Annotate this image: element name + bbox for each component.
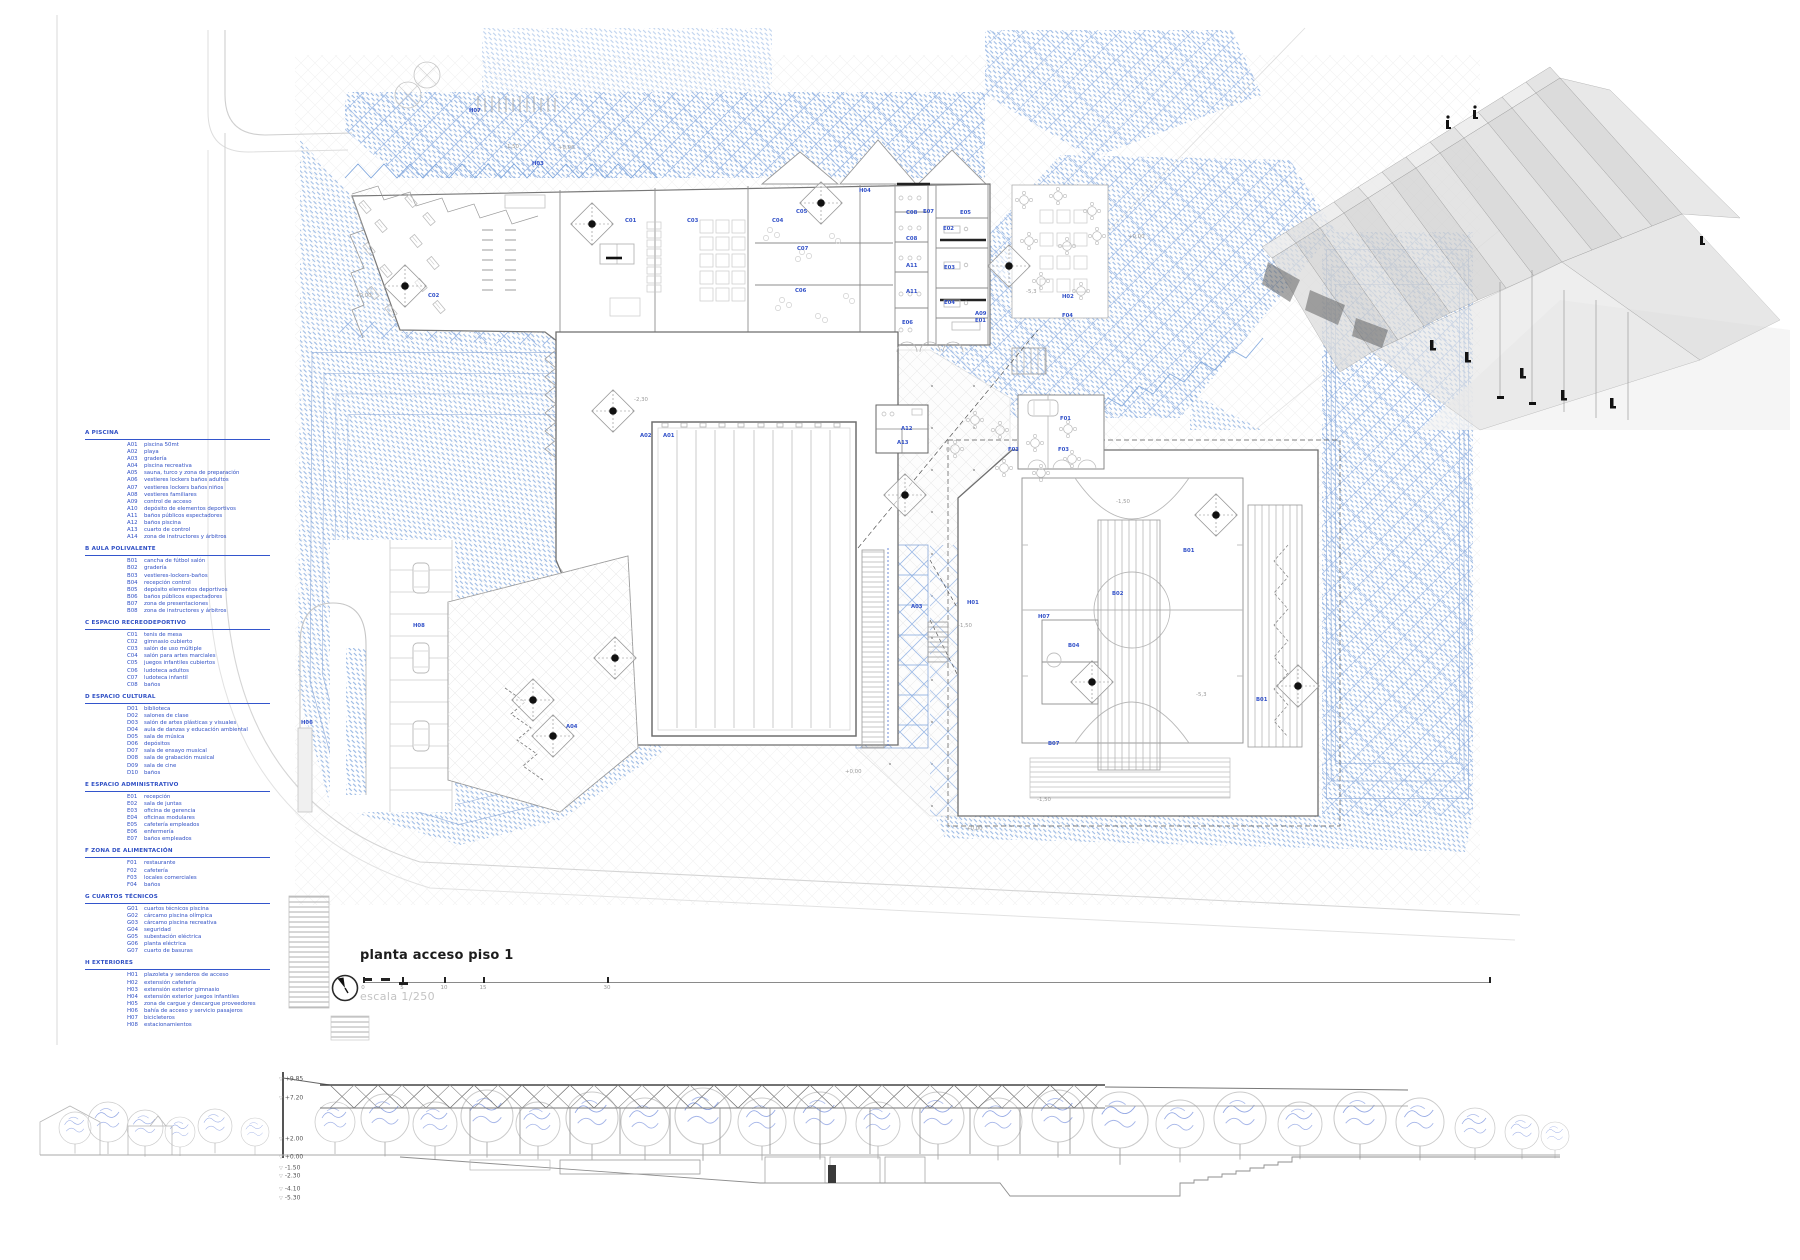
legend-item: D02salones de clase: [85, 713, 270, 720]
legend-item-code: D07: [127, 748, 144, 755]
legend-item-code: B01: [127, 558, 144, 565]
legend-item-label: baños: [144, 882, 270, 889]
section-level-annotation: ▽+2.00: [279, 1136, 303, 1143]
room-code-label: E03: [944, 265, 955, 271]
room-code-label: E05: [960, 210, 971, 216]
level-marker-icon: ▽: [279, 1077, 283, 1083]
legend-item-code: H06: [127, 1008, 144, 1015]
legend-item-code: D10: [127, 770, 144, 777]
legend-item-label: ludoteca infantil: [144, 675, 270, 682]
room-code-label: H06: [301, 720, 313, 726]
legend-item: B05depósito elementos deportivos: [85, 587, 270, 594]
level-marker-icon: ▽: [279, 1187, 283, 1193]
level-annotation: -1,50: [1116, 499, 1130, 505]
level-marker-icon: ▽: [279, 1137, 283, 1143]
legend-item: D06depósitos: [85, 741, 270, 748]
legend-item: A02playa: [85, 449, 270, 456]
legend-item-code: A06: [127, 477, 144, 484]
legend-item-code: A14: [127, 534, 144, 541]
legend-section: B AULA POLIVALENTEB01cancha de fútbol sa…: [85, 546, 270, 615]
legend-section-title: E ESPACIO ADMINISTRATIVO: [85, 782, 270, 792]
legend-item-label: salón para artes marciales: [144, 653, 270, 660]
legend-item-code: G05: [127, 934, 144, 941]
room-code-label: A04: [566, 724, 577, 730]
legend-item-code: F01: [127, 860, 144, 867]
room-code-label: A11: [906, 263, 917, 269]
legend-item-label: cuartos técnicos piscina: [144, 906, 270, 913]
legend-item-code: G07: [127, 948, 144, 955]
legend-item: A11baños públicos espectadores: [85, 513, 270, 520]
legend-item-code: D08: [127, 755, 144, 762]
room-code-label: B01: [1183, 548, 1194, 554]
room-code-label: A11: [906, 289, 917, 295]
legend-item-code: C01: [127, 632, 144, 639]
legend-section: D ESPACIO CULTURALD01bibliotecaD02salone…: [85, 694, 270, 777]
legend-item-label: baños públicos espectadores: [144, 513, 270, 520]
legend-item-label: gradería: [144, 456, 270, 463]
level-marker-icon: ▽: [279, 1196, 283, 1202]
legend-item-code: B02: [127, 565, 144, 572]
legend-item-label: extensión exterior juegos infantiles: [144, 994, 270, 1001]
level-marker-icon: ▽: [279, 1096, 283, 1102]
legend-item: D09sala de cine: [85, 763, 270, 770]
legend-item: A06vestieres lockers baños adultos: [85, 477, 270, 484]
section-level-value: +7.20: [285, 1095, 303, 1102]
room-code-label: E07: [923, 209, 934, 215]
legend-item: A08vestieres familiares: [85, 492, 270, 499]
room-code-label: B01: [1256, 697, 1267, 703]
legend-item-code: D03: [127, 720, 144, 727]
legend-item-label: cafetería: [144, 868, 270, 875]
legend-item: B06baños públicos espectadores: [85, 594, 270, 601]
room-code-label: C06: [795, 288, 806, 294]
legend-item-label: oficina de gerencia: [144, 808, 270, 815]
legend-item-label: zona de instructores y árbitros: [144, 534, 270, 541]
room-code-label: A03: [911, 604, 922, 610]
room-legend: A PISCINAA01piscina 50mtA02playaA03grade…: [85, 430, 270, 1034]
legend-section: A PISCINAA01piscina 50mtA02playaA03grade…: [85, 430, 270, 541]
legend-item-code: A04: [127, 463, 144, 470]
level-annotation: -5,3: [1026, 289, 1037, 295]
legend-item-label: cuarto de basuras: [144, 948, 270, 955]
legend-section: H EXTERIORESH01plazoleta y senderos de a…: [85, 960, 270, 1029]
room-code-label: A02: [640, 433, 651, 439]
legend-item-code: H08: [127, 1022, 144, 1029]
legend-item-code: A12: [127, 520, 144, 527]
legend-item: C07ludoteca infantil: [85, 675, 270, 682]
legend-item: H08estacionamientos: [85, 1022, 270, 1029]
legend-item: B02gradería: [85, 565, 270, 572]
legend-item-label: baños públicos espectadores: [144, 594, 270, 601]
legend-item-code: F04: [127, 882, 144, 889]
legend-section: E ESPACIO ADMINISTRATIVOE01recepciónE02s…: [85, 782, 270, 844]
legend-item: H05zona de cargue y descargue proveedore…: [85, 1001, 270, 1008]
legend-item-code: C04: [127, 653, 144, 660]
section-level-annotation: ▽-2.30: [279, 1173, 300, 1180]
legend-item-label: recepción control: [144, 580, 270, 587]
legend-item-code: B05: [127, 587, 144, 594]
legend-item-label: vestieres-lockers-baños: [144, 573, 270, 580]
legend-item: C05juegos infantiles cubiertos: [85, 660, 270, 667]
legend-item-code: G03: [127, 920, 144, 927]
legend-item-label: ludoteca adultos: [144, 668, 270, 675]
level-annotation: +0,00: [966, 826, 983, 832]
legend-item-code: A05: [127, 470, 144, 477]
section-level-value: -2.30: [285, 1173, 301, 1180]
legend-item-label: depósito elementos deportivos: [144, 587, 270, 594]
legend-item-code: A08: [127, 492, 144, 499]
legend-item: E02sala de juntas: [85, 801, 270, 808]
legend-item: E07baños empleados: [85, 836, 270, 843]
car-icon: [413, 643, 429, 673]
legend-item-code: F02: [127, 868, 144, 875]
legend-item: G06planta eléctrica: [85, 941, 270, 948]
room-code-label: B02: [1112, 591, 1123, 597]
legend-item-code: E04: [127, 815, 144, 822]
legend-item-label: zona de cargue y descargue proveedores: [144, 1001, 270, 1008]
legend-item: A07vestieres lockers baños niños: [85, 485, 270, 492]
legend-item-label: planta eléctrica: [144, 941, 270, 948]
legend-item-code: A09: [127, 499, 144, 506]
legend-item-label: zona de presentaciones: [144, 601, 270, 608]
plan-drawing: [0, 0, 1800, 1260]
section-level-value: +0.00: [285, 1154, 303, 1161]
legend-item-code: B08: [127, 608, 144, 615]
room-code-label: C07: [797, 246, 808, 252]
section-level-annotation: ▽+7.20: [279, 1095, 303, 1102]
legend-section-title: D ESPACIO CULTURAL: [85, 694, 270, 704]
legend-item-code: B04: [127, 580, 144, 587]
level-annotation: +0,00: [558, 145, 575, 151]
legend-section-title: C ESPACIO RECREODEPORTIVO: [85, 620, 270, 630]
legend-item: D05sala de música: [85, 734, 270, 741]
legend-item-code: G04: [127, 927, 144, 934]
service-vehicle-icon: [1028, 400, 1058, 416]
legend-item: A14zona de instructores y árbitros: [85, 534, 270, 541]
legend-item: A09control de acceso: [85, 499, 270, 506]
legend-item-code: H05: [127, 1001, 144, 1008]
room-code-label: E04: [944, 300, 955, 306]
legend-item-code: C08: [127, 682, 144, 689]
legend-item-label: juegos infantiles cubiertos: [144, 660, 270, 667]
legend-item-label: baños: [144, 682, 270, 689]
architectural-sheet: A PISCINAA01piscina 50mtA02playaA03grade…: [0, 0, 1800, 1260]
legend-item-code: C02: [127, 639, 144, 646]
legend-item-label: bicicleteros: [144, 1015, 270, 1022]
legend-item: D01biblioteca: [85, 706, 270, 713]
legend-item: D10baños: [85, 770, 270, 777]
legend-item-code: B03: [127, 573, 144, 580]
legend-item-label: vestieres lockers baños adultos: [144, 477, 270, 484]
legend-item: H01plazoleta y senderos de acceso: [85, 972, 270, 979]
legend-item-code: F03: [127, 875, 144, 882]
legend-item-code: G02: [127, 913, 144, 920]
legend-section-title: B AULA POLIVALENTE: [85, 546, 270, 556]
legend-item-code: B06: [127, 594, 144, 601]
legend-item-label: vestieres lockers baños niños: [144, 485, 270, 492]
room-code-label: E06: [902, 320, 913, 326]
scale-label: escala 1/250: [360, 990, 435, 1003]
level-annotation: -5,3: [1196, 692, 1207, 698]
legend-item-label: enfermería: [144, 829, 270, 836]
legend-item-code: H01: [127, 972, 144, 979]
legend-item-code: D02: [127, 713, 144, 720]
legend-item-code: E07: [127, 836, 144, 843]
legend-item-code: A02: [127, 449, 144, 456]
legend-item: A12baños piscina: [85, 520, 270, 527]
legend-section-title: A PISCINA: [85, 430, 270, 440]
legend-item-code: G06: [127, 941, 144, 948]
legend-item: G01cuartos técnicos piscina: [85, 906, 270, 913]
swimming-pool: [652, 422, 856, 736]
legend-item: E05cafetería empleados: [85, 822, 270, 829]
legend-item: E06enfermería: [85, 829, 270, 836]
legend-item-label: baños piscina: [144, 520, 270, 527]
legend-item: H02extensión cafetería: [85, 980, 270, 987]
legend-item-code: A13: [127, 527, 144, 534]
legend-item-label: gradería: [144, 565, 270, 572]
legend-section-title: G CUARTOS TÉCNICOS: [85, 894, 270, 904]
section-level-annotation: ▽+9.85: [279, 1076, 303, 1083]
legend-item: C06ludoteca adultos: [85, 668, 270, 675]
legend-item: C01tenis de mesa: [85, 632, 270, 639]
legend-item: F04baños: [85, 882, 270, 889]
legend-item: H06bahía de acceso y servicio pasajeros: [85, 1008, 270, 1015]
car-icon: [413, 563, 429, 593]
legend-item-label: sala de grabación musical: [144, 755, 270, 762]
section-level-annotation: ▽-4.10: [279, 1186, 300, 1193]
section-drawing: [40, 1072, 1569, 1196]
legend-item-code: A03: [127, 456, 144, 463]
legend-item-code: C07: [127, 675, 144, 682]
room-code-label: C01: [625, 218, 636, 224]
page-title: planta acceso piso 1: [360, 948, 514, 963]
north-arrow-icon: [331, 974, 359, 1002]
level-marker-icon: ▽: [279, 1174, 283, 1180]
level-annotation: -1,50: [1037, 797, 1051, 803]
section-level-value: -5.30: [285, 1195, 301, 1202]
legend-item-code: E02: [127, 801, 144, 808]
room-code-label: F03: [1008, 447, 1019, 453]
legend-item-code: D06: [127, 741, 144, 748]
section-level-value: +9.85: [285, 1076, 303, 1083]
level-marker-icon: ▽: [279, 1166, 283, 1172]
legend-item-code: H03: [127, 987, 144, 994]
section-level-value: -4.10: [285, 1186, 301, 1193]
legend-item: F01restaurante: [85, 860, 270, 867]
legend-item: E01recepción: [85, 794, 270, 801]
legend-item-label: estacionamientos: [144, 1022, 270, 1029]
legend-item-label: sala de juntas: [144, 801, 270, 808]
legend-item-code: E05: [127, 822, 144, 829]
legend-item: A10depósito de elementos deportivos: [85, 506, 270, 513]
level-annotation: +0,00: [845, 769, 862, 775]
room-code-label: E01: [975, 318, 986, 324]
legend-item-code: H07: [127, 1015, 144, 1022]
section-level-value: +2.00: [285, 1136, 303, 1143]
legend-item: A03gradería: [85, 456, 270, 463]
room-code-label: H02: [1062, 294, 1074, 300]
legend-item-label: control de acceso: [144, 499, 270, 506]
legend-item: F02cafetería: [85, 868, 270, 875]
legend-item-label: bahía de acceso y servicio pasajeros: [144, 1008, 270, 1015]
room-code-label: H07: [1038, 614, 1050, 620]
legend-item: B08zona de instructores y árbitros: [85, 608, 270, 615]
legend-item: E03oficina de gerencia: [85, 808, 270, 815]
legend-item-label: tenis de mesa: [144, 632, 270, 639]
room-code-label: A01: [663, 433, 674, 439]
legend-item-code: A11: [127, 513, 144, 520]
legend-item: G03cárcamo piscina recreativa: [85, 920, 270, 927]
room-code-label: H08: [413, 623, 425, 629]
level-annotation: -1,50: [958, 623, 972, 629]
legend-section: F ZONA DE ALIMENTACIÓNF01restauranteF02c…: [85, 848, 270, 888]
legend-item-code: A10: [127, 506, 144, 513]
legend-item-code: A07: [127, 485, 144, 492]
legend-item-label: locales comerciales: [144, 875, 270, 882]
room-code-label: A13: [897, 440, 908, 446]
legend-item: B03vestieres-lockers-baños: [85, 573, 270, 580]
legend-item-label: biblioteca: [144, 706, 270, 713]
legend-item: H04extensión exterior juegos infantiles: [85, 994, 270, 1001]
legend-item-label: recepción: [144, 794, 270, 801]
legend-item-code: H04: [127, 994, 144, 1001]
room-code-label: H01: [967, 600, 979, 606]
room-code-label: A12: [901, 426, 912, 432]
legend-item-label: depósito de elementos deportivos: [144, 506, 270, 513]
legend-item-code: B07: [127, 601, 144, 608]
room-code-label: C03: [687, 218, 698, 224]
section-ground: [40, 1155, 1560, 1196]
room-code-label: H03: [532, 161, 544, 167]
section-level-annotation: ▽-5.30: [279, 1195, 300, 1202]
room-code-label: C05: [796, 209, 807, 215]
level-annotation: -1,50: [505, 144, 519, 150]
legend-item-label: baños: [144, 770, 270, 777]
legend-item-label: zona de instructores y árbitros: [144, 608, 270, 615]
legend-item-label: sauna, turco y zona de preparación: [144, 470, 270, 477]
legend-item-label: restaurante: [144, 860, 270, 867]
legend-item: F03locales comerciales: [85, 875, 270, 882]
legend-item: A05sauna, turco y zona de preparación: [85, 470, 270, 477]
room-code-label: C04: [772, 218, 783, 224]
legend-item: G07cuarto de basuras: [85, 948, 270, 955]
legend-item-code: E03: [127, 808, 144, 815]
section-level-annotation: ▽+0.00: [279, 1154, 303, 1161]
legend-item-code: D01: [127, 706, 144, 713]
legend-item: H03extensión exterior gimnasio: [85, 987, 270, 994]
legend-section-title: F ZONA DE ALIMENTACIÓN: [85, 848, 270, 858]
legend-item-code: G01: [127, 906, 144, 913]
legend-item-label: plazoleta y senderos de acceso: [144, 972, 270, 979]
legend-item: H07bicicleteros: [85, 1015, 270, 1022]
legend-item-code: D05: [127, 734, 144, 741]
legend-item-label: baños empleados: [144, 836, 270, 843]
legend-item-label: extensión cafetería: [144, 980, 270, 987]
legend-item: C04salón para artes marciales: [85, 653, 270, 660]
level-annotation: -2,30: [634, 397, 648, 403]
legend-item: B07zona de presentaciones: [85, 601, 270, 608]
legend-item-code: A01: [127, 442, 144, 449]
room-code-label: E02: [943, 226, 954, 232]
legend-item: A01piscina 50mt: [85, 442, 270, 449]
legend-item-label: extensión exterior gimnasio: [144, 987, 270, 994]
level-marker-icon: ▽: [279, 1155, 283, 1161]
room-code-label: F04: [1062, 313, 1073, 319]
legend-item-label: depósitos: [144, 741, 270, 748]
context-houses: [40, 1106, 172, 1155]
room-code-label: B07: [1048, 741, 1059, 747]
legend-section-title: H EXTERIORES: [85, 960, 270, 970]
legend-item: G02cárcamo piscina olímpica: [85, 913, 270, 920]
room-code-label: B04: [1068, 643, 1079, 649]
legend-item-code: D04: [127, 727, 144, 734]
level-annotation: +0,00: [1128, 234, 1145, 240]
room-code-label: F03: [1058, 447, 1069, 453]
legend-item-label: vestieres familiares: [144, 492, 270, 499]
section-level-value: -1.50: [285, 1165, 301, 1172]
legend-section: C ESPACIO RECREODEPORTIVOC01tenis de mes…: [85, 620, 270, 689]
legend-item-label: sala de cine: [144, 763, 270, 770]
room-code-label: H04: [859, 188, 871, 194]
room-code-label: H07: [469, 108, 481, 114]
room-code-label: C08: [906, 236, 917, 242]
legend-item-code: E06: [127, 829, 144, 836]
legend-item-label: piscina 50mt: [144, 442, 270, 449]
legend-item-code: E01: [127, 794, 144, 801]
legend-item-code: H02: [127, 980, 144, 987]
legend-item-label: cárcamo piscina recreativa: [144, 920, 270, 927]
legend-item-code: C06: [127, 668, 144, 675]
legend-item: C08baños: [85, 682, 270, 689]
room-code-label: C08: [906, 210, 917, 216]
room-code-label: C02: [428, 293, 439, 299]
legend-section: G CUARTOS TÉCNICOSG01cuartos técnicos pi…: [85, 894, 270, 956]
legend-item: B01cancha de fútbol salón: [85, 558, 270, 565]
section-level-annotation: ▽-1.50: [279, 1165, 300, 1172]
legend-item: D08sala de grabación musical: [85, 755, 270, 762]
room-code-label: A09: [975, 311, 986, 317]
bleachers-bottom: [1030, 758, 1230, 798]
room-code-label: F01: [1060, 416, 1071, 422]
bleachers-left: [1098, 520, 1160, 770]
legend-item-label: cárcamo piscina olímpica: [144, 913, 270, 920]
legend-item: B04recepción control: [85, 580, 270, 587]
level-annotation: +0,00: [355, 293, 372, 299]
legend-item-code: C05: [127, 660, 144, 667]
legend-item-label: salones de clase: [144, 713, 270, 720]
car-icon: [413, 721, 429, 751]
legend-item-code: D09: [127, 763, 144, 770]
legend-item-code: C03: [127, 646, 144, 653]
